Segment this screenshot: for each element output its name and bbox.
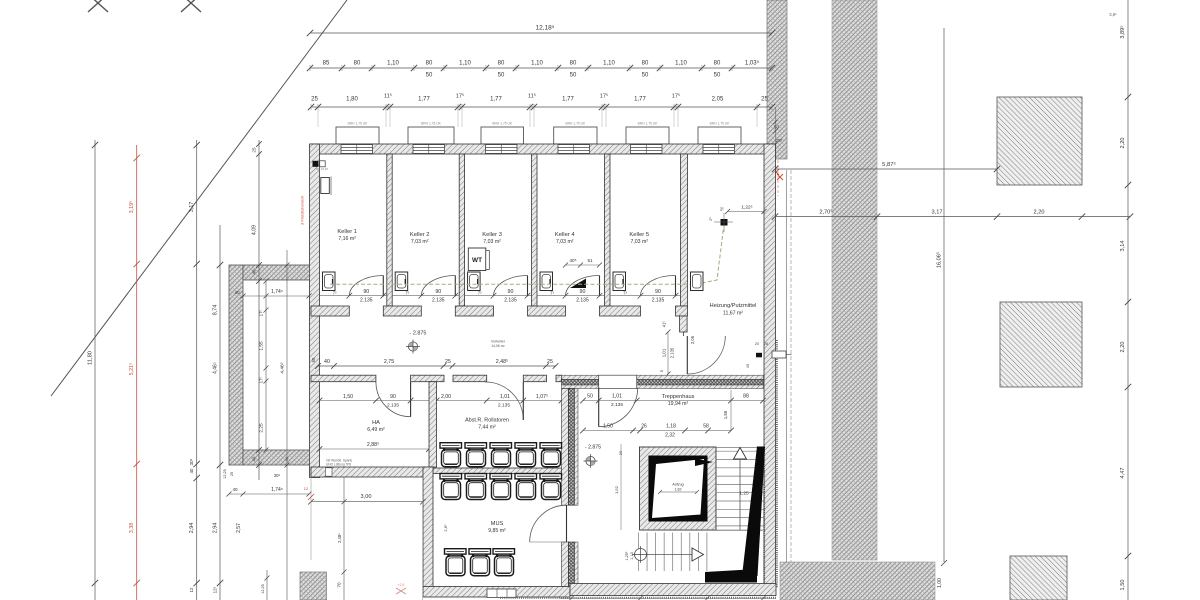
svg-text:90: 90 [435,289,441,295]
svg-text:7,03 m²: 7,03 m² [411,239,429,245]
svg-text:3,00: 3,00 [361,494,372,500]
svg-text:2,48⁵: 2,48⁵ [496,359,509,365]
svg-text:1,03⁵: 1,03⁵ [745,60,760,67]
svg-text:1,00: 1,00 [937,578,943,588]
svg-text:2,20: 2,20 [1120,342,1126,353]
svg-text:2.135: 2.135 [652,298,665,304]
svg-text:17⁵: 17⁵ [672,93,680,100]
svg-text:7,03 m²: 7,03 m² [556,239,574,245]
svg-text:40: 40 [324,359,330,365]
svg-text:5: 5 [660,370,664,372]
svg-text:1,74⁵: 1,74⁵ [271,289,283,295]
svg-text:1,10: 1,10 [387,61,399,67]
svg-text:19,94 m²: 19,94 m² [668,401,689,407]
svg-text:11,80: 11,80 [88,351,94,365]
svg-text:1,01: 1,01 [662,348,667,357]
svg-text:7³: 7³ [623,291,627,296]
svg-text:17⁵: 17⁵ [600,93,608,100]
svg-text:MUS: MUS [491,521,504,527]
svg-text:11⁵: 11⁵ [384,93,392,100]
svg-text:50: 50 [498,73,505,79]
svg-text:2,06: 2,06 [690,335,695,344]
svg-text:40: 40 [252,269,257,275]
svg-text:7³: 7³ [550,291,554,296]
svg-text:2,88⁵: 2,88⁵ [367,442,379,448]
svg-text:3,17: 3,17 [932,210,943,216]
svg-text:80: 80 [426,61,433,67]
svg-text:12,25: 12,25 [223,469,227,479]
svg-text:1,10: 1,10 [603,61,615,67]
svg-text:3,89⁵: 3,89⁵ [1119,25,1126,38]
svg-text:2,20: 2,20 [1034,210,1045,216]
svg-text:14,06 m²: 14,06 m² [491,344,505,348]
svg-text:28⁵: 28⁵ [776,138,783,143]
svg-text:2,05: 2,05 [712,97,724,103]
svg-text:5,21⁵: 5,21⁵ [129,363,135,376]
svg-text:2,75: 2,75 [384,359,394,365]
svg-text:26: 26 [764,342,768,346]
svg-text:5,87⁵: 5,87⁵ [882,161,896,168]
svg-text:Keller 2: Keller 2 [410,232,430,238]
svg-text:BRH 1,75 UK: BRH 1,75 UK [638,122,659,126]
svg-text:1,01: 1,01 [500,394,510,400]
svg-text:BRH 1,75 UK: BRH 1,75 UK [421,122,442,126]
svg-text:3,8⁵: 3,8⁵ [1109,12,1117,17]
svg-text:1,77: 1,77 [490,97,502,103]
svg-text:2,32: 2,32 [665,433,675,439]
svg-text:11⁵: 11⁵ [528,93,536,100]
svg-text:4,46⁵: 4,46⁵ [280,362,286,373]
svg-text:1,52: 1,52 [614,485,619,494]
svg-text:16,06⁵: 16,06⁵ [936,252,943,268]
svg-text:40: 40 [232,487,238,492]
svg-text:1,77: 1,77 [562,97,574,103]
svg-text:2,57: 2,57 [236,523,242,533]
svg-text:85: 85 [323,61,330,67]
svg-text:40⁵: 40⁵ [569,258,576,263]
svg-text:41⁵: 41⁵ [662,321,667,328]
svg-text:25: 25 [761,97,768,103]
svg-text:50: 50 [311,357,316,362]
svg-text:9,85 m²: 9,85 m² [488,528,506,534]
svg-text:Vorkeller: Vorkeller [491,340,506,344]
svg-text:2.135: 2.135 [360,298,373,304]
svg-text:50: 50 [774,125,779,130]
svg-text:50: 50 [426,73,433,79]
svg-text:1,01: 1,01 [612,394,622,400]
svg-text:50: 50 [570,73,577,79]
svg-text:4,09: 4,09 [252,225,258,235]
svg-text:7,03 m²: 7,03 m² [483,239,501,245]
svg-text:25: 25 [252,147,257,153]
svg-text:- 2.875: - 2.875 [410,331,427,337]
svg-text:1,50: 1,50 [343,394,353,400]
svg-text:1,22⁵: 1,22⁵ [741,205,752,211]
svg-text:Keller 4: Keller 4 [555,232,575,238]
svg-text:2,00: 2,00 [441,394,451,400]
svg-text:40: 40 [234,290,240,295]
svg-text:1,55: 1,55 [723,410,728,419]
svg-text:UNO Lüftung 7P8: UNO Lüftung 7P8 [326,463,351,467]
svg-text:2,25: 2,25 [259,423,265,433]
svg-text:7³: 7³ [405,291,409,296]
svg-text:7³: 7³ [478,291,482,296]
svg-text:12,18⁵: 12,18⁵ [536,25,555,32]
svg-text:40: 40 [252,456,257,461]
svg-text:2.135: 2.135 [611,402,623,408]
svg-text:1,13: 1,13 [630,552,634,559]
svg-text:1,10: 1,10 [459,61,471,67]
svg-text:Keller 5: Keller 5 [629,232,649,238]
svg-text:1,50: 1,50 [1120,580,1126,591]
svg-text:1,80: 1,80 [346,97,358,103]
svg-text:3,14: 3,14 [1120,241,1126,252]
svg-text:50: 50 [714,73,721,79]
svg-text:80: 80 [642,61,649,67]
svg-text:3,38: 3,38 [129,523,135,534]
svg-text:2.135: 2.135 [576,298,589,304]
svg-text:1,77: 1,77 [418,97,430,103]
svg-text:1,25: 1,25 [739,491,749,497]
svg-text:50: 50 [587,394,593,400]
svg-text:DD.15.30: DD.15.30 [316,167,328,171]
svg-text:80: 80 [354,61,361,67]
svg-text:2,20: 2,20 [1120,138,1126,149]
svg-text:90: 90 [363,289,369,295]
svg-text:1,10: 1,10 [675,61,687,67]
svg-text:20: 20 [755,342,759,346]
svg-text:12,25: 12,25 [261,584,265,594]
svg-text:25: 25 [311,97,318,103]
svg-text:3,17: 3,17 [189,202,195,213]
svg-text:49: 49 [746,364,750,368]
svg-text:2.135: 2.135 [670,347,675,358]
svg-text:2⁵: 2⁵ [720,207,724,212]
svg-text:2.135: 2.135 [387,403,399,409]
svg-text:90: 90 [580,289,586,295]
svg-text:Aufzug: Aufzug [672,483,683,487]
svg-text:1,25⁵: 1,25⁵ [625,551,629,560]
svg-text:1,10: 1,10 [531,61,543,67]
svg-text:2,70⁵: 2,70⁵ [819,209,832,216]
svg-text:1,74⁵: 1,74⁵ [271,487,283,493]
svg-text:80: 80 [570,61,577,67]
svg-text:2,94: 2,94 [189,523,195,534]
svg-text:90: 90 [655,289,661,295]
svg-text:1,18: 1,18 [666,424,676,430]
svg-text:BRH 1,75 UK: BRH 1,75 UK [565,122,586,126]
svg-text:Keller 1: Keller 1 [337,229,357,235]
svg-text:17⁵: 17⁵ [259,377,264,384]
svg-text:3 Freisitzbereich: 3 Freisitzbereich [300,196,305,225]
svg-text:+2,6: +2,6 [398,583,405,587]
svg-text:51: 51 [587,258,593,263]
svg-text:BRH 1,75 UK: BRH 1,75 UK [710,122,731,126]
svg-text:2,6⁵: 2,6⁵ [443,524,448,532]
svg-text:1,55: 1,55 [259,341,265,351]
svg-text:12: 12 [304,486,309,491]
svg-text:11,67 m²: 11,67 m² [723,311,743,317]
svg-text:26: 26 [641,424,647,430]
svg-text:2,94: 2,94 [213,523,219,534]
svg-text:40: 40 [189,468,194,473]
svg-text:2.135: 2.135 [432,298,445,304]
svg-text:4,46⁵: 4,46⁵ [213,362,219,374]
svg-text:30⁵: 30⁵ [189,458,194,465]
svg-text:50: 50 [642,73,649,79]
svg-text:1,62: 1,62 [675,488,682,492]
svg-text:17⁵: 17⁵ [456,93,464,100]
svg-text:Keller 3: Keller 3 [482,232,502,238]
svg-text:- 2.875: - 2.875 [585,445,601,451]
svg-text:1,07⁵: 1,07⁵ [536,394,548,400]
svg-text:25: 25 [547,359,553,365]
svg-text:25: 25 [230,472,234,476]
svg-text:1,77: 1,77 [634,97,646,103]
svg-text:90: 90 [390,394,396,400]
svg-text:BRH 1,75 UK: BRH 1,75 UK [492,122,513,126]
svg-text:7,44 m²: 7,44 m² [478,425,496,431]
svg-text:2.135: 2.135 [498,403,510,409]
svg-text:90: 90 [508,289,514,295]
svg-text:1,50: 1,50 [603,424,613,430]
svg-text:80: 80 [714,61,721,67]
svg-text:Heizung/Putzmittel: Heizung/Putzmittel [710,303,757,309]
svg-text:25: 25 [445,359,451,365]
svg-text:80: 80 [498,61,505,67]
svg-text:Treppenhaus: Treppenhaus [662,394,695,400]
svg-text:4,47: 4,47 [1120,468,1126,479]
svg-text:2,48⁵: 2,48⁵ [337,533,342,543]
svg-text:7,16 m²: 7,16 m² [338,236,356,242]
svg-text:70: 70 [337,582,342,588]
svg-text:30⁵: 30⁵ [274,473,281,478]
svg-text:BRH 1,75 UK: BRH 1,75 UK [348,122,369,126]
svg-text:7³: 7³ [333,291,337,296]
svg-text:88: 88 [743,394,749,400]
svg-text:3,19⁵: 3,19⁵ [129,201,135,214]
svg-text:12⁵: 12⁵ [213,586,218,593]
svg-text:12: 12 [189,587,194,592]
svg-text:6,49 m²: 6,49 m² [367,427,385,433]
svg-text:2⁵: 2⁵ [709,217,713,221]
svg-text:2.135: 2.135 [504,298,517,304]
svg-text:8,74: 8,74 [213,305,219,316]
svg-text:Abst.R. Rollatoren: Abst.R. Rollatoren [465,418,509,424]
svg-text:WT: WT [472,257,482,264]
svg-text:HA: HA [372,420,380,426]
svg-text:17⁵: 17⁵ [259,310,264,317]
svg-text:58: 58 [703,424,709,430]
svg-text:7,03 m²: 7,03 m² [630,239,648,245]
